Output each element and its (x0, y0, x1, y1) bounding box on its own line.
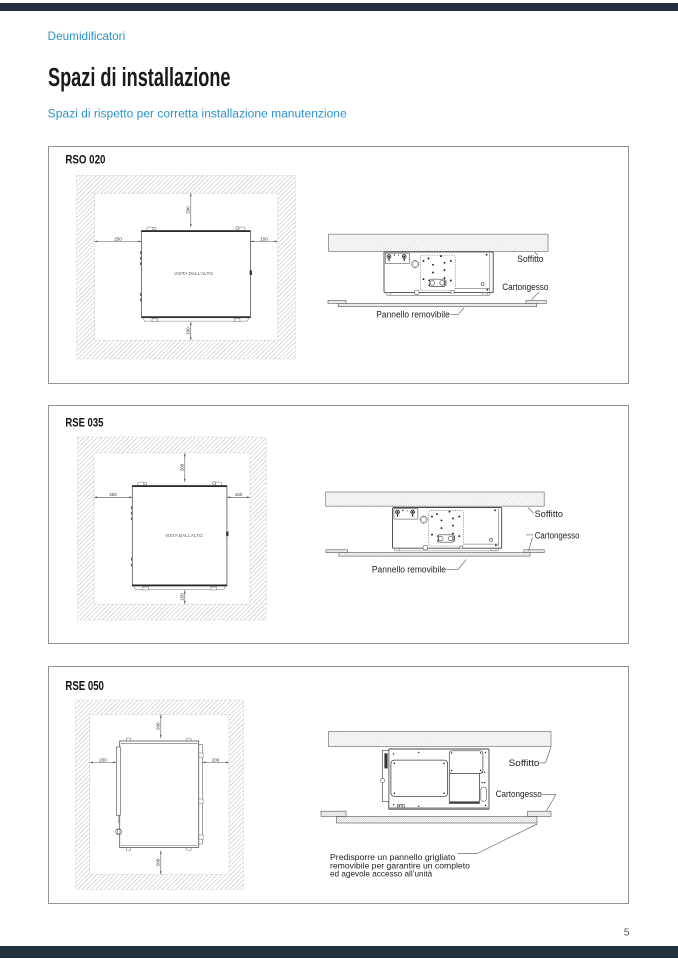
svg-text:ed agevole accesso all’unità: ed agevole accesso all’unità (330, 870, 433, 879)
svg-text:150: 150 (260, 236, 268, 241)
svg-text:Pannello removibile: Pannello removibile (372, 564, 446, 574)
svg-text:Cartongesso: Cartongesso (496, 789, 542, 799)
svg-text:200: 200 (186, 206, 191, 214)
svg-text:200: 200 (212, 757, 220, 762)
svg-text:Deumidificatori: Deumidificatori (48, 30, 126, 43)
svg-text:Pannello removibile: Pannello removibile (376, 310, 450, 320)
svg-text:Soffitto: Soffitto (535, 509, 563, 519)
svg-text:200: 200 (180, 463, 185, 471)
svg-text:RSE 050: RSE 050 (65, 679, 104, 693)
svg-text:Soffitto: Soffitto (517, 254, 543, 264)
svg-text:200: 200 (156, 858, 161, 866)
svg-text:200: 200 (99, 757, 107, 762)
svg-text:150: 150 (180, 593, 185, 601)
svg-text:Cartongesso: Cartongesso (535, 531, 580, 541)
svg-text:150: 150 (235, 492, 243, 497)
svg-text:Spazi di rispetto per corretta: Spazi di rispetto per corretta installaz… (48, 108, 347, 120)
svg-text:RSE 035: RSE 035 (65, 415, 103, 429)
svg-text:VISTA DALL’ALTO: VISTA DALL’ALTO (165, 533, 203, 538)
svg-text:5: 5 (624, 927, 630, 939)
svg-text:250: 250 (109, 492, 117, 497)
svg-text:Spazi di installazione: Spazi di installazione (48, 64, 231, 92)
svg-text:Cartongesso: Cartongesso (502, 282, 548, 292)
svg-text:100: 100 (186, 327, 191, 335)
svg-text:200: 200 (156, 722, 161, 730)
svg-text:250: 250 (114, 236, 122, 241)
svg-text:RSO 020: RSO 020 (65, 152, 105, 166)
svg-text:VISTA DALL’ALTO: VISTA DALL’ALTO (174, 271, 213, 276)
svg-text:Soffitto: Soffitto (509, 758, 540, 768)
